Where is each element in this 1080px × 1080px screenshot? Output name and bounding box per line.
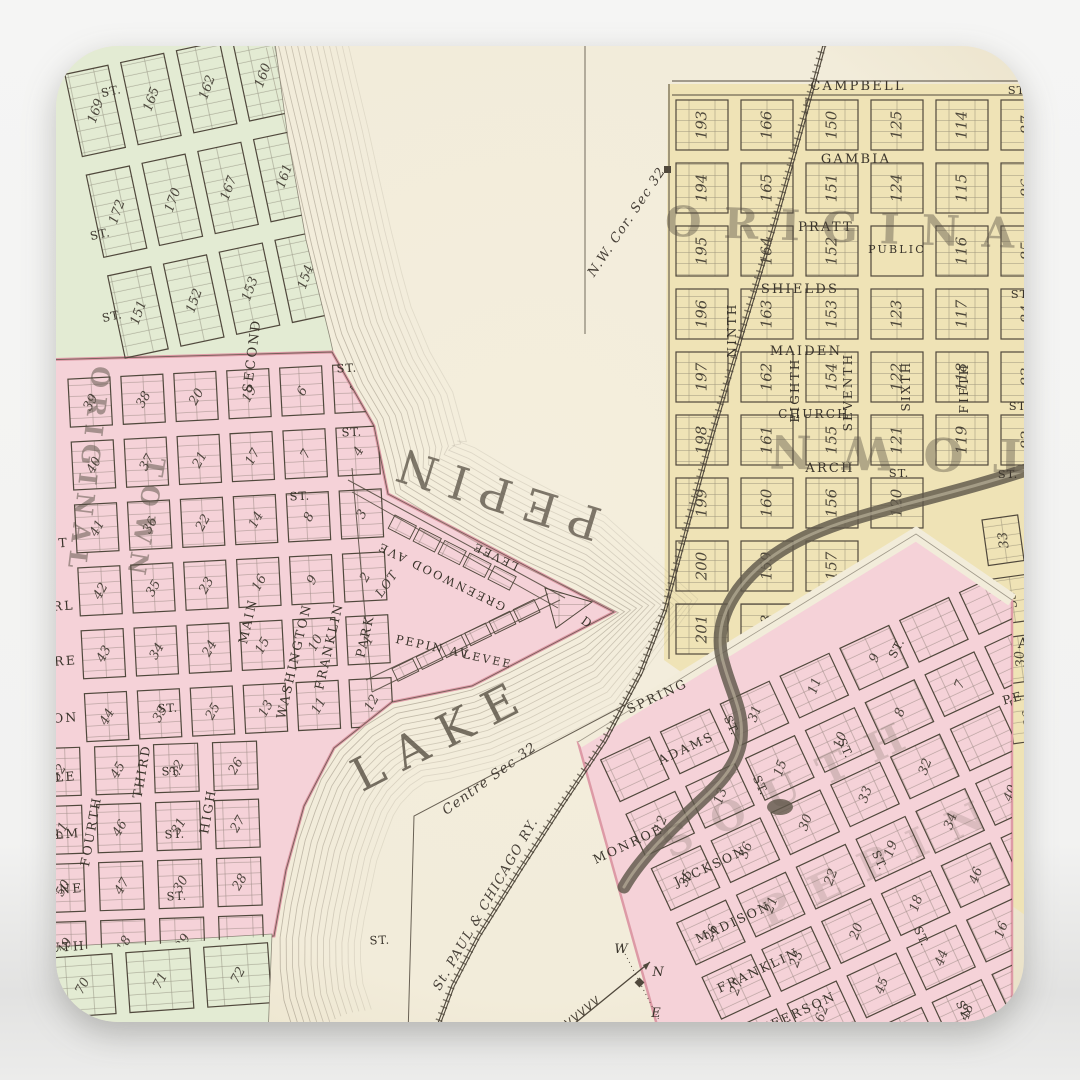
block-number: 31 <box>1058 643 1075 661</box>
block-number: 36 <box>1020 709 1037 727</box>
block-number: 168 <box>119 0 142 13</box>
st-abbrev-label: ST. <box>336 360 357 375</box>
st-abbrev-label: ST. <box>157 700 178 715</box>
street-label: EIGHTH <box>788 357 802 422</box>
street-label: MAIDEN <box>770 344 842 359</box>
city-block <box>1001 352 1053 402</box>
block-number: 30 <box>1012 650 1029 668</box>
compass-letter: E <box>650 1006 661 1021</box>
st-abbrev-label: ST. <box>341 424 362 439</box>
product-photo-scene: 1931661501251148719416515112411586195164… <box>0 0 1080 1080</box>
block-number: 47 <box>897 1029 917 1051</box>
city-block <box>1044 627 1080 678</box>
block-number: 29 <box>1066 703 1080 722</box>
st-abbrev-label: ST. <box>1011 287 1032 301</box>
block-number: 87 <box>1018 115 1036 135</box>
block-number: 124 <box>888 174 906 203</box>
city-block <box>753 1063 821 1080</box>
block-number: 61 <box>753 1031 773 1052</box>
city-block <box>1036 733 1080 798</box>
street-label: SHIELDS <box>761 282 839 297</box>
city-block <box>813 1035 881 1080</box>
city-block <box>43 0 104 56</box>
compass-letter: W <box>614 942 629 957</box>
block-number: 153 <box>823 300 841 329</box>
city-block <box>155 0 216 32</box>
block-number: 150 <box>823 110 841 139</box>
st-abbrev-label: ST. <box>289 488 310 503</box>
block-number: 86 <box>1018 178 1036 198</box>
sticker-clip-group: 1931661501251148719416515112411586195164… <box>36 0 1080 1080</box>
block-number: 83 <box>1018 367 1036 386</box>
city-block <box>211 0 272 20</box>
block-number: 171 <box>63 0 86 25</box>
block-number: 84 <box>1018 304 1036 323</box>
st-abbrev-label: ST. <box>1009 399 1030 413</box>
block-number: 33 <box>995 531 1012 549</box>
block-number: 196 <box>693 299 711 328</box>
street-label: ON <box>52 709 79 726</box>
street-label: LE <box>54 768 77 784</box>
city-block <box>1001 100 1053 150</box>
city-block <box>1053 687 1080 738</box>
street-label: INE <box>51 880 84 897</box>
st-abbrev-label: ST. <box>164 826 185 841</box>
block-number: 160 <box>758 488 776 517</box>
block-number: 117 <box>953 299 971 328</box>
block-number: 197 <box>693 362 711 391</box>
block-number: 125 <box>888 111 906 140</box>
street-label: A <box>1017 636 1030 652</box>
city-block <box>1001 289 1053 339</box>
street-label: NINTH <box>725 302 739 357</box>
block-number: 64 <box>838 1058 858 1079</box>
block-number: 166 <box>175 0 198 1</box>
street-label: UTH <box>49 938 86 956</box>
block-number: 156 <box>823 488 841 517</box>
block-number: 165 <box>758 174 776 203</box>
st-abbrev-label: ST. <box>369 932 390 947</box>
street-label: SIXTH <box>899 361 913 412</box>
city-block <box>1061 787 1080 852</box>
street-label: FIFTH <box>957 363 971 414</box>
block-number: 114 <box>953 111 971 140</box>
compass-letter: N <box>651 965 664 980</box>
block-number: 115 <box>953 174 971 203</box>
block-number: 12 <box>1052 892 1072 913</box>
st-abbrev-label: ST. <box>166 888 187 903</box>
city-block <box>1026 869 1080 934</box>
city-block <box>1001 163 1053 213</box>
st-abbrev-label: ST. <box>1008 83 1029 97</box>
st-abbrev-label: ST. <box>161 763 182 778</box>
street-label: SEVENTH <box>841 353 855 432</box>
city-block <box>99 0 160 44</box>
block-number: 34 <box>1041 524 1058 542</box>
block-number: 154 <box>823 363 841 392</box>
block-number: 123 <box>888 300 906 329</box>
block-number: 32 <box>1049 584 1066 602</box>
big-place-label: TOWN <box>739 423 1028 482</box>
block-number: 166 <box>758 110 776 139</box>
street-label: GAMBIA <box>821 152 891 167</box>
block-number: 193 <box>693 111 711 140</box>
city-block <box>1052 924 1080 989</box>
city-block <box>1036 568 1078 619</box>
block-number: 200 <box>693 551 711 581</box>
vintage-map-square-sticker[interactable]: 1931661501251148719416515112411586195164… <box>0 0 1080 1080</box>
block-number: 163 <box>758 300 776 329</box>
street-label: CAMPBELL <box>810 79 905 94</box>
city-block <box>266 0 327 8</box>
street-label: RL <box>52 597 75 614</box>
street-label: RE <box>54 652 78 669</box>
block-number: 151 <box>823 174 841 203</box>
city-block <box>1028 509 1070 560</box>
block-number: 162 <box>758 363 776 392</box>
block-number: 201 <box>693 615 711 645</box>
street-label: LM <box>54 825 80 842</box>
